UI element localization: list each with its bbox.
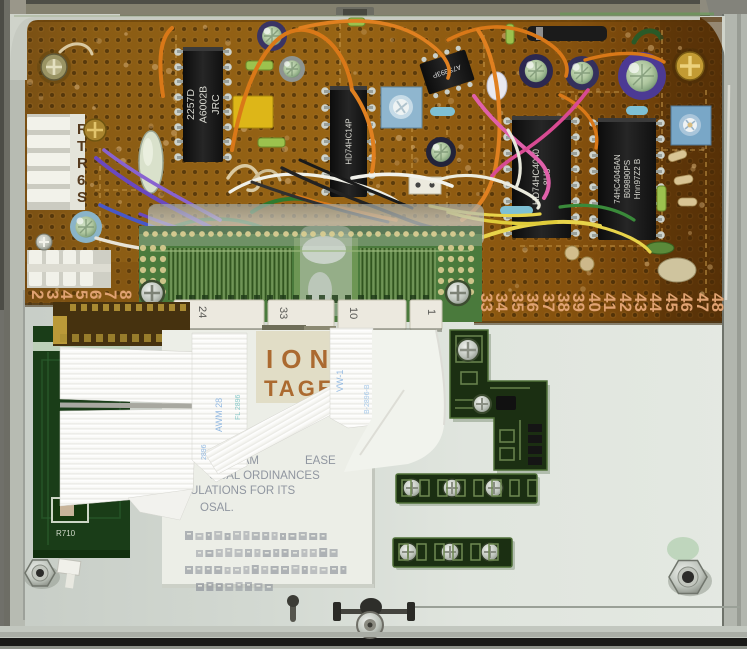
svg-text:AWM 28: AWM 28 [214,398,224,432]
svg-text:HD74HC14P: HD74HC14P [344,118,353,164]
svg-text:24: 24 [196,306,208,318]
svg-text:R710: R710 [56,529,76,538]
svg-text:VW-1: VW-1 [335,370,345,392]
svg-text:JRC: JRC [210,94,222,115]
svg-text:2896: 2896 [201,444,208,460]
svg-text:S: S [77,189,87,206]
svg-text:B09890PS: B09890PS [623,160,632,198]
svg-text:48: 48 [708,293,727,312]
svg-text:33: 33 [277,307,289,319]
svg-text:8: 8 [116,290,135,299]
svg-text:1: 1 [425,309,437,315]
svg-text:6: 6 [77,172,85,189]
svg-text:A6002B: A6002B [198,86,210,123]
svg-text:T: T [77,138,86,155]
svg-text:Hnn97Z2 B: Hnn97Z2 B [633,159,642,199]
svg-text:ULATIONS FOR ITS: ULATIONS FOR ITS [190,485,296,497]
svg-text:10: 10 [347,307,359,319]
svg-text:2257D: 2257D [185,89,197,120]
svg-text:EASE: EASE [305,455,336,467]
svg-text:74HC4046AN: 74HC4046AN [613,154,622,204]
svg-text:OSAL.: OSAL. [200,502,234,514]
svg-text:R: R [77,155,88,172]
svg-text:ION: ION [266,344,336,374]
svg-text:B-2896-B: B-2896-B [364,384,371,414]
svg-text:FL 2896: FL 2896 [235,394,242,420]
